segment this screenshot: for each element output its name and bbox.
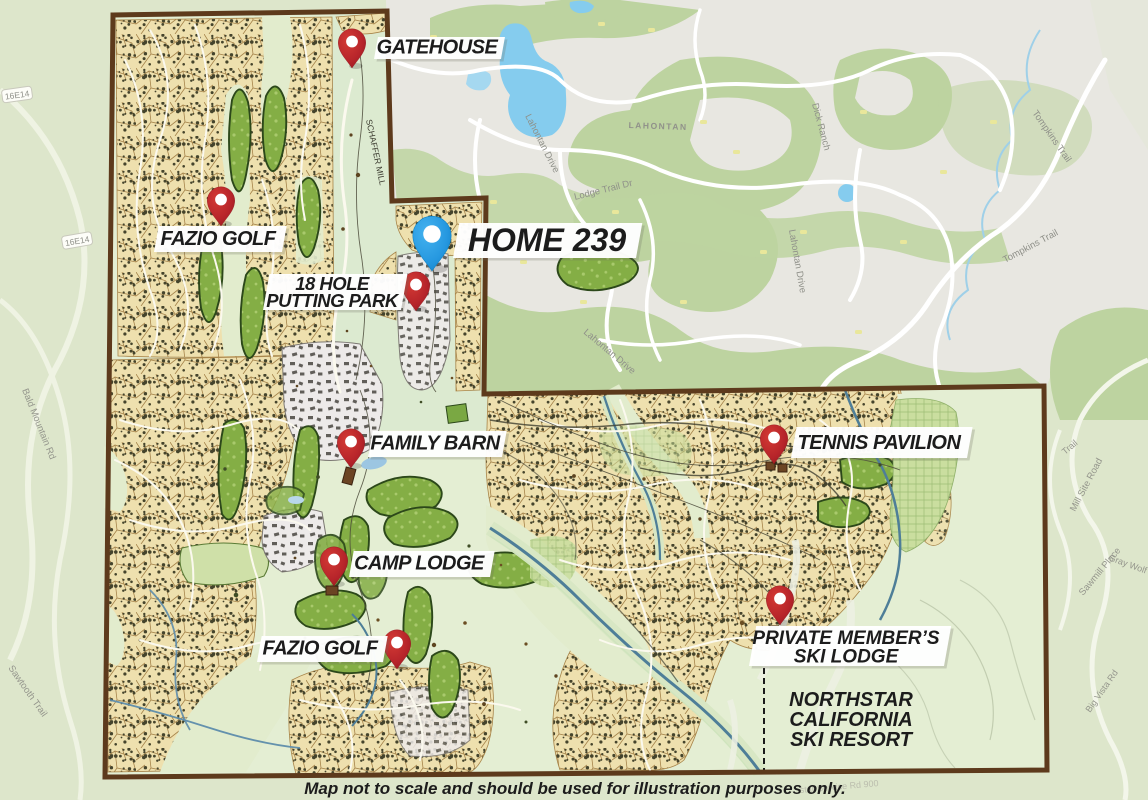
svg-text:HOME 239: HOME 239 [468,222,626,258]
svg-text:GATEHOUSE: GATEHOUSE [377,37,499,59]
svg-text:FAMILY BARN: FAMILY BARN [370,433,500,455]
svg-text:PUTTING PARK: PUTTING PARK [266,290,400,311]
svg-text:LAHONTAN: LAHONTAN [628,120,687,132]
svg-text:SKI LODGE: SKI LODGE [794,647,900,668]
svg-text:SKI RESORT: SKI RESORT [790,729,914,751]
svg-text:FAZIO GOLF: FAZIO GOLF [161,228,277,250]
svg-text:CALIFORNIA: CALIFORNIA [789,709,912,731]
svg-text:NORTHSTAR: NORTHSTAR [789,689,913,711]
svg-text:Map not to scale and should be: Map not to scale and should be used for … [304,779,846,798]
svg-text:TENNIS PAVILION: TENNIS PAVILION [798,432,962,454]
svg-text:CAMP LODGE: CAMP LODGE [354,553,485,575]
svg-text:FAZIO GOLF: FAZIO GOLF [263,638,379,660]
